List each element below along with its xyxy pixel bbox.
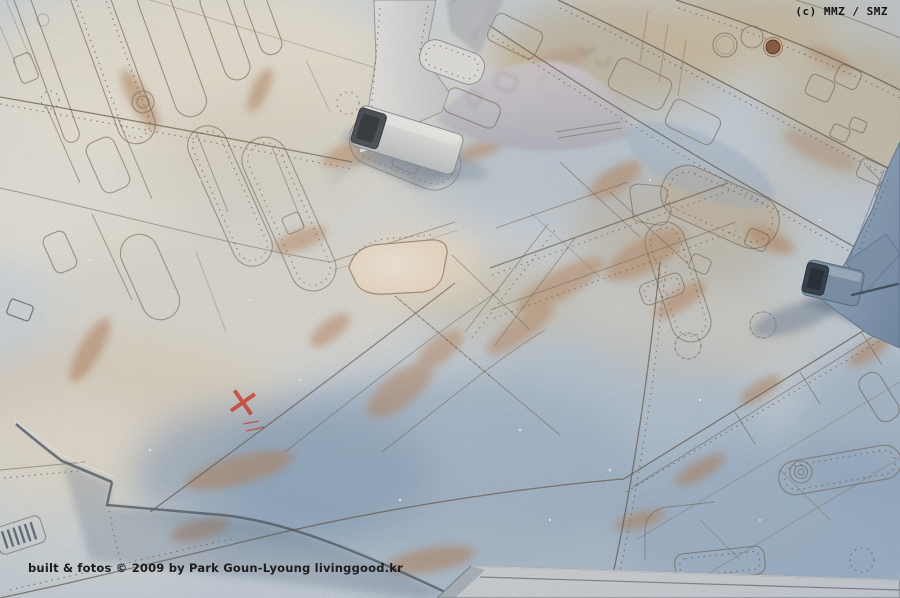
photo: ✕ (c) MMZ / SMZ built & fotos © 2009 by … [0,0,900,598]
caption-text: built & fotos © 2009 by Park Goun-Lyoung… [28,561,403,575]
watermark-text: (c) MMZ / SMZ [795,5,888,18]
model-photo: ✕ [0,0,900,598]
film-grain [0,0,900,598]
